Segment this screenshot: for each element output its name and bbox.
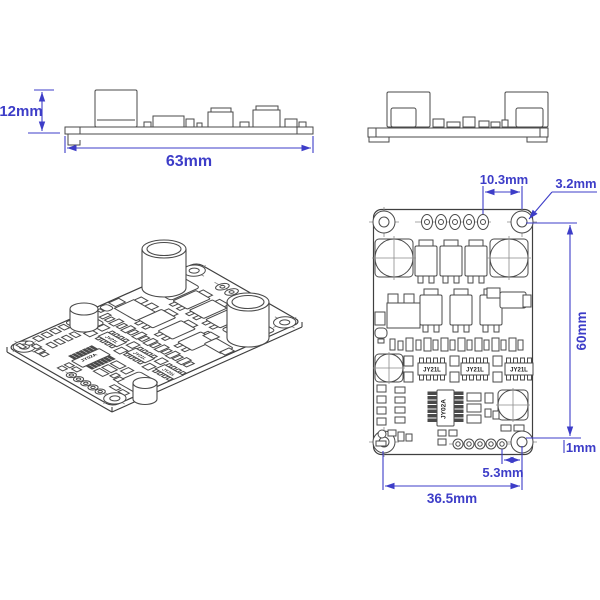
connector-below [68, 134, 80, 145]
front-view [368, 92, 548, 142]
side-components [95, 90, 306, 127]
dim-board-height-label: 60mm [574, 311, 589, 350]
dim-board-length-label: 63mm [166, 153, 212, 170]
front-components [387, 92, 548, 127]
top-view: 10.3mm 3.2mm 60mm 1mm 5.3mm 36.5mm [369, 172, 597, 506]
isometric-view [3, 240, 306, 412]
board-edge [368, 128, 548, 137]
capacitor-cylinder [227, 293, 269, 347]
dim-board-height-label: 12mm [0, 103, 43, 120]
drawing-canvas: JY21L JY21L JY21L [0, 0, 600, 600]
capacitor-profile [391, 108, 416, 127]
capacitor-cylinder [142, 240, 186, 297]
dim-60mm-lines [526, 223, 581, 438]
capacitor-profile [516, 108, 543, 127]
capacitor-cylinder [70, 303, 98, 332]
dim-63mm-lines [65, 136, 313, 153]
dim-pad-to-hole-label: 10.3mm [480, 172, 528, 187]
dim-edge-offset-label: 1mm [566, 440, 596, 455]
dim-hole-diameter-label: 3.2mm [555, 176, 596, 191]
drawing-page: JY21L JY21L JY21L [0, 0, 600, 600]
dim-pad-offset-label: 5.3mm [482, 465, 523, 480]
capacitor-cylinder [133, 378, 157, 405]
capacitor-profile [253, 110, 280, 127]
capacitor-profile [95, 90, 137, 127]
side-view: 12mm 63mm [0, 90, 313, 170]
capacitor-profile [208, 112, 233, 127]
board-edge [65, 127, 313, 134]
dim-3-2mm-leader [529, 192, 597, 219]
dim-hole-span-label: 36.5mm [427, 491, 477, 506]
